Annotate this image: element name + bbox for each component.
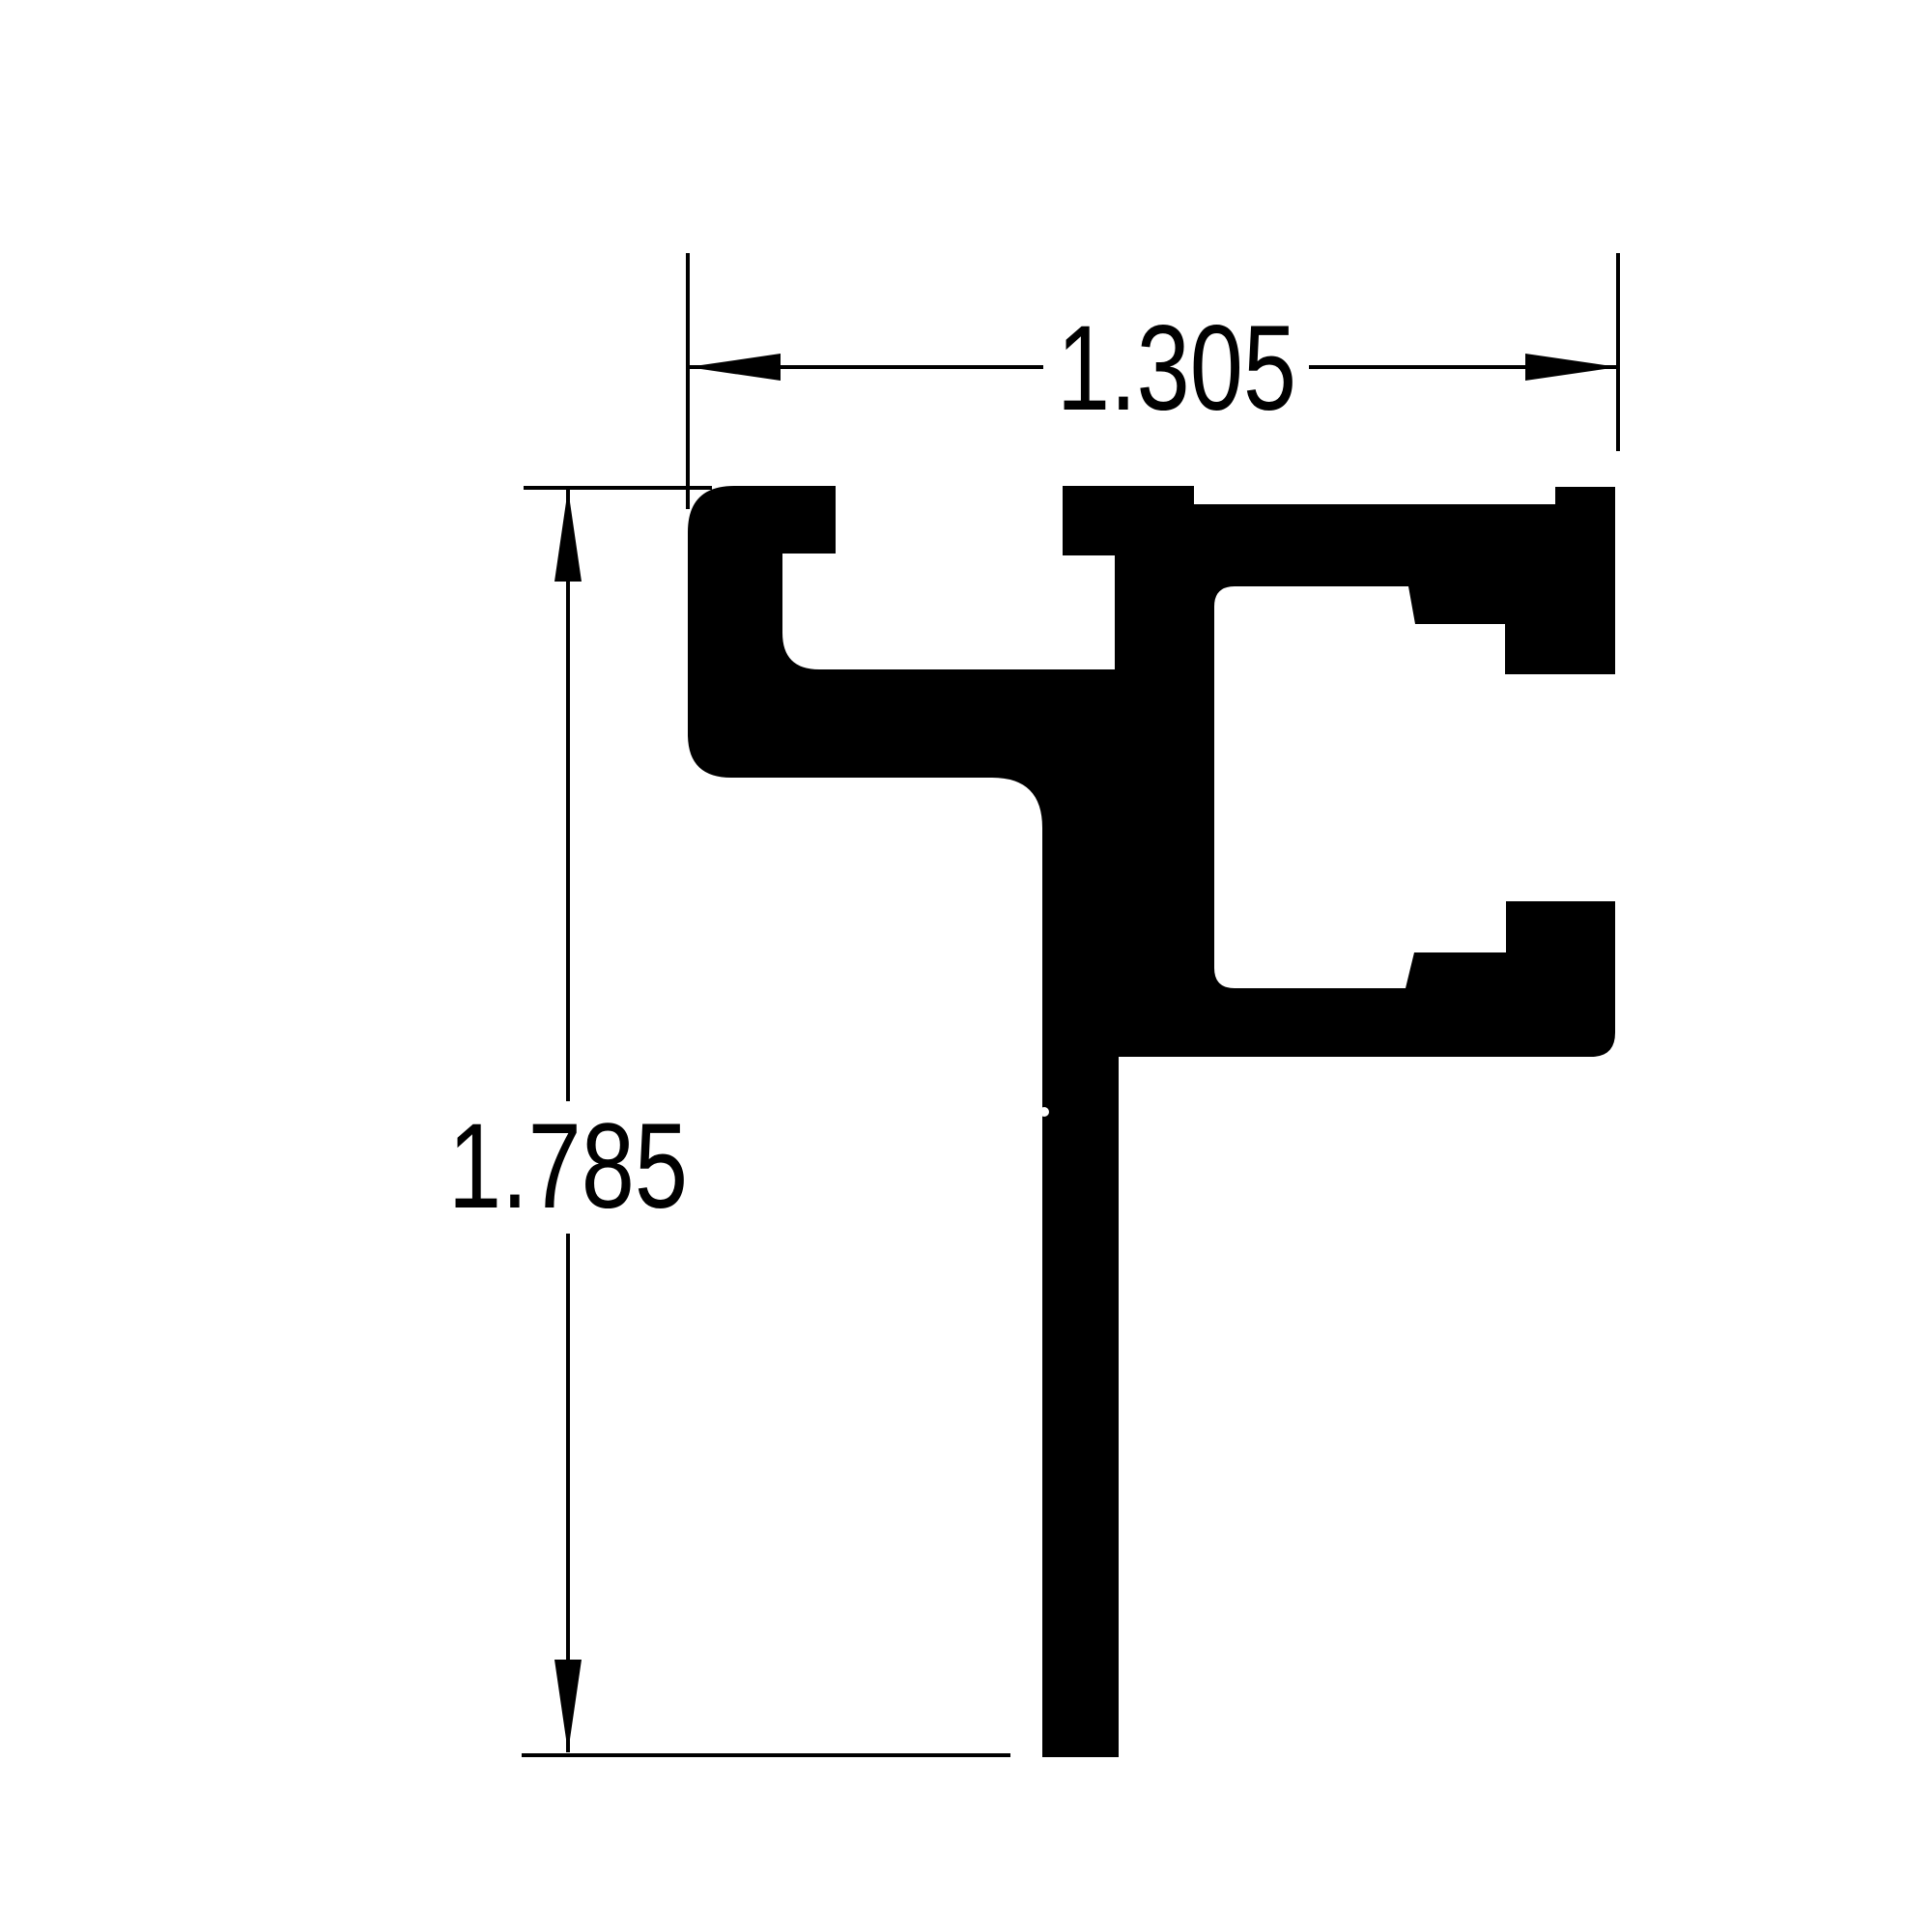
width-dimension: 1.305 xyxy=(688,253,1618,509)
extrusion-drawing: 1.305 1.785 xyxy=(0,0,1932,1932)
height-arrowhead-top xyxy=(554,489,582,582)
height-dimension-value: 1.785 xyxy=(448,1099,688,1234)
drawing-canvas: 1.305 1.785 xyxy=(0,0,1932,1932)
width-arrowhead-right xyxy=(1525,354,1618,381)
width-dimension-value: 1.305 xyxy=(1057,301,1296,436)
width-arrowhead-left xyxy=(688,354,781,381)
profile-outline xyxy=(688,486,1615,1757)
stem-edge-notch-artifact xyxy=(1039,1107,1049,1117)
height-arrowhead-bottom xyxy=(554,1660,582,1752)
profile-cross-section xyxy=(688,486,1615,1757)
